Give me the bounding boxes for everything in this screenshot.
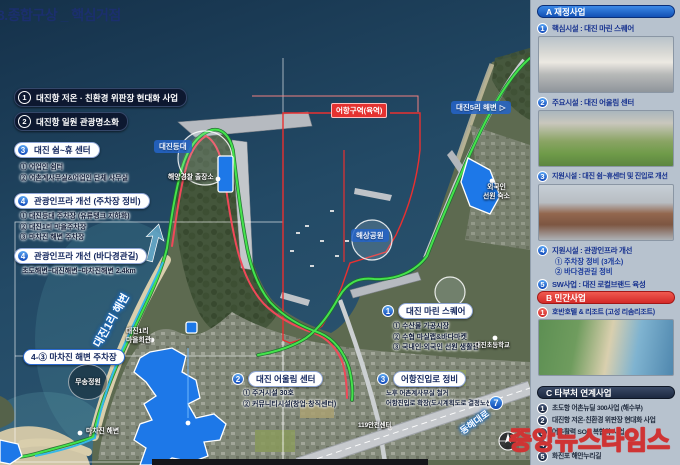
site-number: 1 [382,305,394,317]
callout-sea-trail-sub: 초도해변~대진해변~마차진해변 2.4km [22,267,136,278]
site-marine-square-subs: ① 수산물 가공시장② 수협 마실랩&바다마켓③ 국내인·외국인 선원 생활관 [393,322,479,354]
foreign-quarters-label: 외국인 선원 숙소 [483,184,510,202]
item-number: 3 [537,171,548,182]
route-7-badge: 7 [489,396,503,410]
project-a4: 4 지원시설 : 관광인프라 개선 [537,245,680,256]
site-access-road-subs: 노후 어촌계사무실 철거어항진입로 확장(도시계획도로 결정노선) [386,389,494,408]
site-community-center: 2 대진 어울림 센터 [232,371,323,387]
community-center-render-image [538,110,674,167]
marine-park-label: 해상공원 [351,229,389,242]
site-number: 3 [377,373,389,385]
rest-center-render-image [538,184,674,241]
machajin-beach-label: 마차진 해변 [86,428,119,437]
beach5-label: 대진5리 해변 ▷ [451,101,511,114]
callout-number: 1 [18,91,31,104]
site-number: 2 [232,373,244,385]
item-number: 5 [537,279,548,290]
item-number: 2 [537,97,548,108]
page-title: 3.종합구상 _ 핵심거점 [0,5,121,25]
project-a3: 3 지원시설 : 대진 쉼~휴센터 및 진입로 개선 [537,171,680,182]
callout-number: 4 [17,250,29,262]
coast-guard-label: 해양경찰 출장소 [168,174,214,183]
item-number: 1 [537,307,548,318]
machajin-parking-callout: 4-③ 마차진 해변 주차장 [23,349,125,365]
project-a5: 5 SW사업 : 대진 로컬브랜드 육성 [537,279,680,290]
fire-station-label: 119안전센터 [358,422,391,430]
resort-aerial-image [538,319,674,376]
plan-page: 3.종합구상 _ 핵심거점 1 대진항 저온 · 친환경 위판장 현대화 사업 … [0,0,680,465]
item-number: 1 [537,403,548,414]
item-number: 1 [537,23,548,34]
watermark: 중앙뉴스타임스 [509,421,670,457]
village-hall-label: 대진1리 마을회관 [126,328,151,346]
lighthouse-label: 대진등대 [154,140,192,153]
item-number: 4 [537,245,548,256]
arrow-right-icon: ▷ [500,103,506,112]
project-c1: 1 초도항 어촌뉴딜 300사업 (해수부) [537,403,680,414]
scale-bar [152,459,428,465]
callout-sea-trail: 4 관광인프라 개선 (바다경관길) [14,248,147,264]
callout-parking-improvement: 4 관광인프라 개선 (주차장 정비) [14,193,150,209]
section-b-header: B 민간사업 [537,291,675,304]
callout-rest-center: 3 대진 쉼~휴 센터 [14,142,100,158]
project-b1: 1 호반호텔 & 리조트 (고성 리솜리조트) [537,307,680,318]
project-a4-sub1: ① 주차장 정비 (3개소) [555,257,623,267]
callout-fish-market: 1 대진항 저온 · 친환경 위판장 현대화 사업 [14,88,187,107]
section-c-header: C 타부처 연계사업 [537,386,675,399]
site-access-road: 3 어항진입로 정비 [377,371,466,387]
callout-parking-subs: ① 대진등대 주차장 (유류탱크 지하화)② 대진1리 마을주차장③ 마차진 해… [20,212,130,244]
site-marine-square: 1 대진 마린 스퀘어 [382,303,473,319]
site-community-center-subs: ① 주거시설 30호② 커뮤니티시설(창업·창직센터) [243,389,336,410]
project-a1: 1 핵심시설 : 대진 마린 스퀘어 [537,23,680,34]
section-a-header: A 재정사업 [537,5,675,18]
callout-rest-center-subs: ① 어업인 쉼터② 어촌계사무실&어업인 단체 사무실 [20,163,128,184]
musong-park-label: 무송정원 [68,364,108,400]
project-sidebar: A 재정사업 1 핵심시설 : 대진 마린 스퀘어 2 주요시설 : 대진 어울… [530,0,680,465]
port-zone-label: 어항구역(육역) [331,103,387,118]
callout-number: 3 [17,144,29,156]
callout-number: 2 [18,115,31,128]
callout-tourist-attraction: 2 대진항 일원 관광명소화 [14,112,128,131]
callout-number: 4 [17,195,29,207]
project-a2: 2 주요시설 : 대진 어울림 센터 [537,97,680,108]
marine-square-render-image [538,36,674,93]
marker-icon [186,322,197,333]
school-label: 대진초등학교 [475,342,510,350]
project-a4-sub2: ② 바다경관길 정비 [555,267,612,277]
